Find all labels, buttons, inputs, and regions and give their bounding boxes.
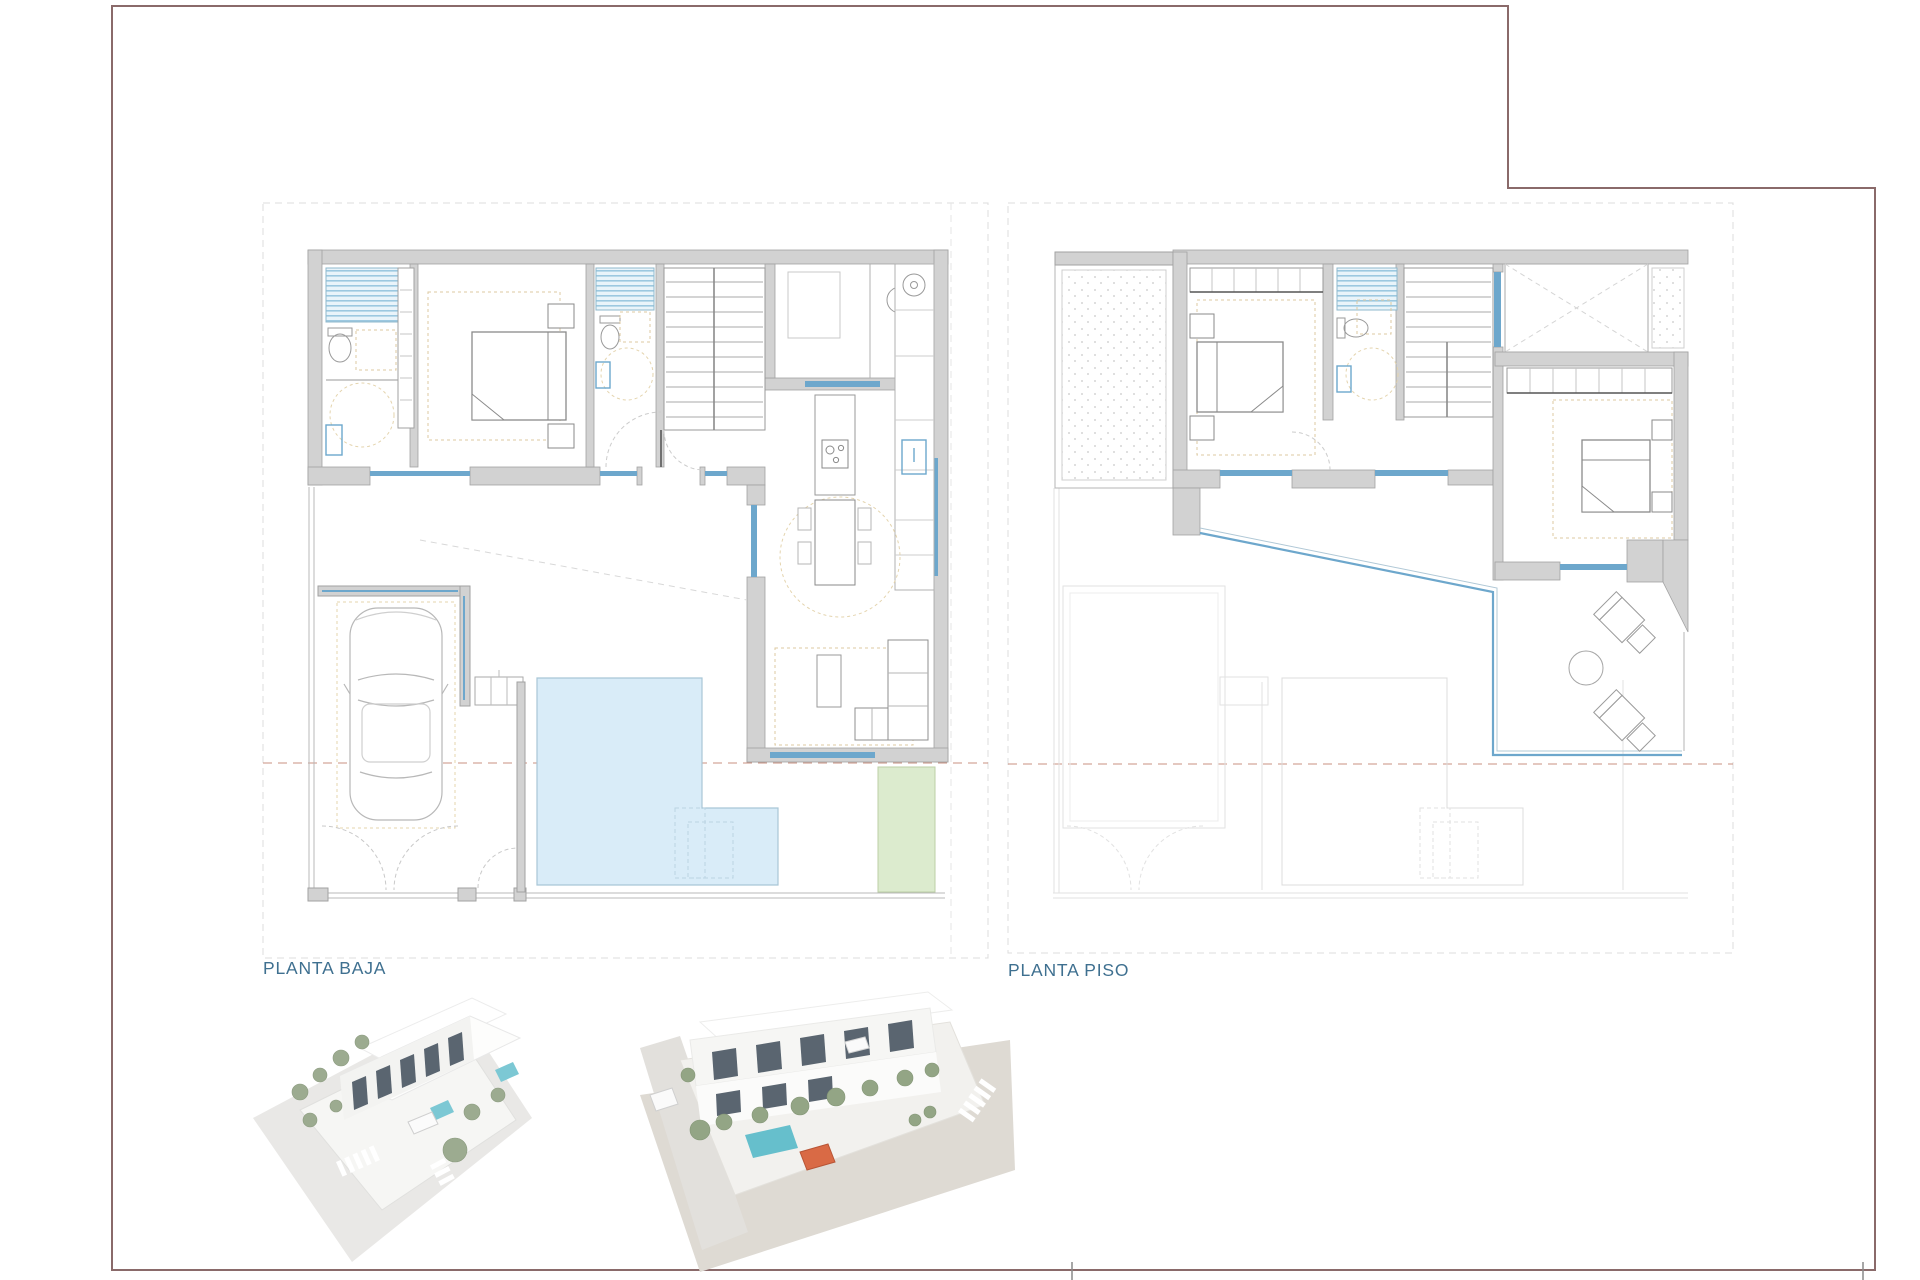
terrace-void-piso <box>1505 264 1684 352</box>
dining-baja <box>780 395 900 617</box>
pool-baja <box>537 678 778 885</box>
exterior-render-right <box>640 992 1015 1272</box>
laundry-baja <box>788 264 913 378</box>
wardrobe-baja <box>398 268 414 428</box>
entry-baja <box>475 670 525 892</box>
floorplan-canvas <box>0 0 1920 1280</box>
stairs-baja <box>664 268 765 430</box>
planta-baja-label: PLANTA BAJA <box>263 958 386 979</box>
stairs-piso <box>1404 268 1493 417</box>
car-top-view <box>344 608 448 820</box>
bedroom-1-piso <box>1190 268 1330 470</box>
bathroom-1-baja <box>326 268 398 455</box>
plan-planta-baja <box>263 203 988 958</box>
bedroom-2-piso <box>1507 368 1672 538</box>
plan-sheet: PLANTA BAJA PLANTA PISO <box>0 0 1920 1280</box>
bathroom-piso <box>1337 268 1398 400</box>
garden-strip-baja <box>878 767 935 892</box>
kitchen-baja <box>895 264 934 590</box>
ground-floor-ghost <box>1053 488 1688 898</box>
living-room-baja <box>775 640 928 745</box>
terrace-solarium-piso <box>1055 252 1173 488</box>
bedroom-baja <box>428 292 574 448</box>
terrace-lounge-piso <box>1200 528 1684 755</box>
plan-planta-piso <box>1008 203 1733 953</box>
bathroom-2-baja <box>596 268 654 400</box>
planta-piso-label: PLANTA PISO <box>1008 960 1129 981</box>
exterior-render-left <box>253 998 532 1262</box>
